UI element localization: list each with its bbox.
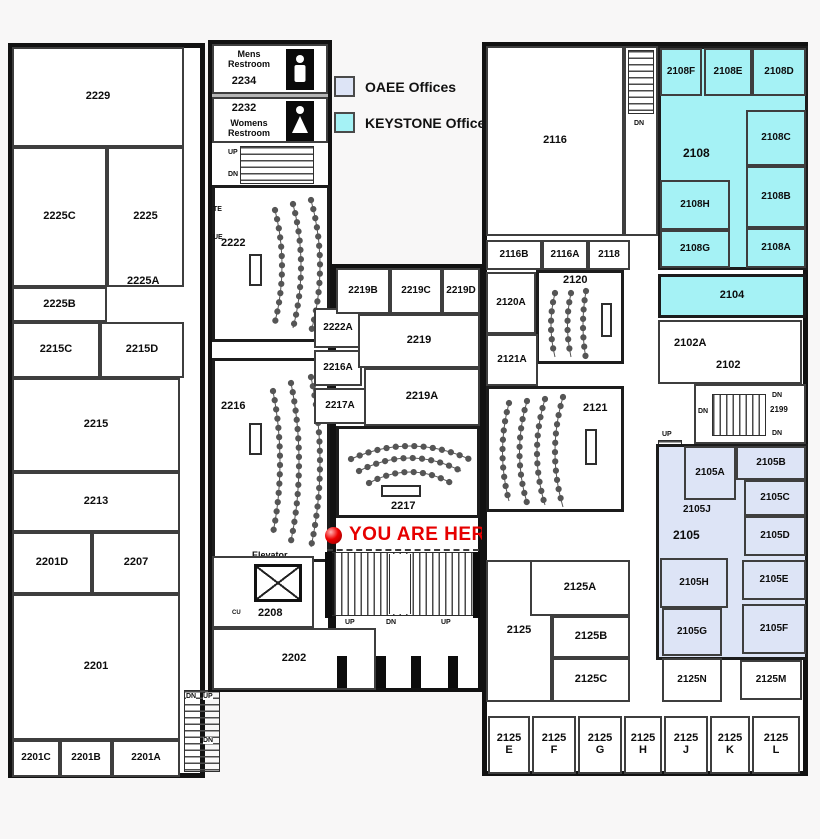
legend-swatch-keystone	[334, 112, 355, 133]
room-2116B-label: 2116B	[500, 250, 529, 261]
room-2219C-label: 2219C	[401, 286, 430, 297]
room-2116-label: 2116	[543, 135, 567, 147]
room-2125K-label: 2125 K	[718, 733, 742, 757]
room-2116B: 2116B	[486, 240, 542, 270]
you-are-here-label: YOU ARE HERE	[349, 524, 499, 546]
legend-item-keystone: KEYSTONE Offices	[334, 112, 493, 133]
room-2219A-label: 2219A	[406, 391, 438, 403]
room-2121A-label: 2121A	[497, 355, 526, 366]
room-2222-label: 2222	[221, 238, 245, 250]
room-2125B: 2125B	[552, 616, 630, 658]
room-2201C: 2201C	[12, 740, 60, 777]
room-2225-label: 2225	[133, 211, 157, 223]
up-label: UP	[345, 619, 355, 626]
room-2108C: 2108C	[746, 110, 806, 166]
up-label: UP	[441, 619, 451, 626]
legend-item-oaee: OAEE Offices	[334, 76, 456, 97]
room-2108E: 2108E	[704, 48, 752, 96]
room-2105E: 2105E	[742, 560, 806, 600]
room-2125C: 2125C	[552, 658, 630, 702]
room-2105A-label: 2105A	[695, 468, 724, 479]
room-2105H: 2105H	[660, 558, 728, 608]
room-mens-restroom: Mens Restroom 2234	[212, 44, 328, 94]
room-2225C: 2225C	[12, 147, 107, 287]
room-2216A: 2216A	[314, 350, 362, 386]
room-2108F: 2108F	[660, 48, 702, 96]
room-2215C-label: 2215C	[40, 344, 72, 356]
te-label: TE	[213, 206, 222, 213]
room-2201A: 2201A	[112, 740, 180, 777]
room-2216: 2216	[212, 358, 330, 562]
room-2202: 2202	[212, 628, 376, 690]
dn-label: DN	[772, 430, 782, 437]
room-2120: 2120	[536, 270, 624, 364]
stairs-southwest	[184, 690, 220, 772]
entrance-post	[337, 656, 347, 688]
room-2121-label: 2121	[583, 403, 607, 415]
room-2215D: 2215D	[100, 322, 184, 378]
room-2219A: 2219A	[364, 368, 480, 426]
room-2125A-label: 2125A	[564, 582, 596, 594]
legend-label-keystone: KEYSTONE Offices	[365, 115, 493, 131]
room-2125F: 2125 F	[532, 716, 576, 774]
room-2105C-label: 2105C	[760, 493, 789, 504]
room-2105F-label: 2105F	[760, 624, 788, 635]
room-2219C: 2219C	[390, 268, 442, 314]
mens-restroom-label: Mens Restroom	[218, 50, 280, 69]
room-2108H-label: 2108H	[680, 200, 709, 211]
up-label: UP	[662, 431, 672, 438]
entrance-post	[448, 656, 458, 688]
stairwell-2199: DN 2199 DN DN	[694, 384, 806, 444]
room-2229: 2229	[12, 47, 184, 147]
room-2105B: 2105B	[736, 446, 806, 480]
room-2105D: 2105D	[744, 516, 806, 556]
room-2108A-label: 2108A	[761, 243, 790, 254]
womens-restroom-label: Womens Restroom	[218, 119, 280, 138]
room-2125-label: 2125	[507, 625, 531, 637]
stairs-restroom	[240, 146, 314, 184]
room-2217-label: 2217	[391, 501, 415, 513]
dn-label: DN	[203, 737, 213, 744]
room-2202-label: 2202	[282, 653, 306, 665]
lectern-2120	[601, 303, 612, 337]
room-2108H: 2108H	[660, 180, 730, 230]
room-2105E-label: 2105E	[760, 575, 789, 586]
room-2201D-label: 2201D	[36, 557, 68, 569]
room-2201B-label: 2201B	[71, 753, 100, 764]
room-2216-label: 2216	[221, 401, 245, 413]
room-2219: 2219	[358, 314, 480, 368]
seat-rows-2217	[343, 431, 477, 487]
room-2201C-label: 2201C	[21, 753, 50, 764]
room-2234-label: 2234	[224, 76, 264, 88]
entrance-post	[376, 656, 386, 688]
lectern-2222	[249, 254, 262, 286]
room-2105-label: 2105	[673, 529, 700, 542]
elevator-icon	[254, 564, 302, 602]
room-2222: 2222	[212, 185, 330, 342]
room-2125L: 2125 L	[752, 716, 800, 774]
room-2116A-label: 2116A	[551, 250, 580, 261]
room-2213-label: 2213	[84, 496, 108, 508]
stairs-northeast	[628, 50, 654, 114]
room-2219B-label: 2219B	[348, 286, 377, 297]
room-2215C: 2215C	[12, 322, 100, 378]
room-2105D-label: 2105D	[760, 531, 789, 542]
up-label: UP	[203, 693, 213, 700]
room-2225B: 2225B	[12, 287, 107, 322]
room-2108-label: 2108	[683, 147, 710, 160]
room-2225B-label: 2225B	[43, 299, 75, 311]
stairs-main-landing	[389, 554, 411, 614]
room-2229-label: 2229	[86, 91, 110, 103]
dn-label: DN	[386, 619, 396, 626]
floor-plan: 2229 2225C 2225 2225A 2225B 2215C 2215D …	[0, 0, 820, 839]
room-2219-label: 2219	[407, 335, 431, 347]
room-womens-restroom: 2232 Womens Restroom	[212, 97, 328, 143]
room-2201: 2201	[12, 594, 180, 740]
room-2208: 2208 CU	[212, 556, 314, 628]
room-2118-label: 2118	[598, 250, 620, 261]
room-2125B-label: 2125B	[575, 631, 607, 643]
room-2207: 2207	[92, 532, 180, 594]
room-2102: 2102A 2102	[658, 320, 802, 384]
room-2219D: 2219D	[442, 268, 480, 314]
room-2108G-label: 2108G	[680, 244, 710, 255]
room-2108F-label: 2108F	[667, 67, 695, 78]
room-2217A-label: 2217A	[325, 401, 354, 412]
you-are-here-dot	[325, 527, 342, 544]
room-2108E-label: 2108E	[714, 67, 743, 78]
up-label: UP	[228, 149, 238, 156]
room-2201D: 2201D	[12, 532, 92, 594]
room-2116: 2116	[486, 46, 624, 236]
room-2125C-label: 2125C	[575, 674, 607, 686]
room-2225A-label: 2225A	[127, 276, 159, 288]
room-2105F: 2105F	[742, 604, 806, 654]
room-2125N-label: 2125N	[677, 675, 706, 686]
legend-swatch-oaee	[334, 76, 355, 97]
dn-label: DN	[634, 120, 644, 127]
room-2105B-label: 2105B	[756, 458, 785, 469]
room-2125A: 2125A	[530, 560, 630, 616]
room-2105G-label: 2105G	[677, 627, 707, 638]
entrance-post	[411, 656, 421, 688]
room-2125E: 2125 E	[488, 716, 530, 774]
room-2125J: 2125 J	[664, 716, 708, 774]
lobby-dashed-line	[327, 549, 479, 551]
room-2199-label: 2199	[770, 406, 788, 415]
room-2105C: 2105C	[744, 480, 806, 516]
lectern-2216	[249, 423, 262, 455]
dn-label: DN	[186, 693, 196, 700]
seat-rows-2121	[493, 393, 585, 511]
room-2201-label: 2201	[84, 661, 108, 673]
room-2125H: 2125 H	[624, 716, 662, 774]
room-2125N: 2125N	[662, 658, 722, 702]
dn-label: DN	[772, 392, 782, 399]
male-icon	[286, 49, 314, 90]
room-2105G: 2105G	[662, 608, 722, 656]
room-2125M-label: 2125M	[756, 675, 787, 686]
room-2118: 2118	[588, 240, 630, 270]
room-2217: 2217	[336, 426, 480, 518]
room-2201B: 2201B	[60, 740, 112, 777]
room-2219D-label: 2219D	[446, 286, 475, 297]
room-2125K: 2125 K	[710, 716, 750, 774]
room-2125L-label: 2125 L	[764, 733, 788, 757]
legend-label-oaee: OAEE Offices	[365, 79, 456, 95]
room-2201A-label: 2201A	[131, 753, 160, 764]
stairwell-northeast: DN	[624, 46, 658, 236]
room-2207-label: 2207	[124, 557, 148, 569]
room-2120-label: 2120	[563, 275, 587, 287]
seat-rows-2120	[543, 287, 599, 363]
room-2213: 2213	[12, 472, 180, 532]
female-icon	[286, 101, 314, 141]
room-2225: 2225	[107, 147, 184, 287]
dn-label: DN	[228, 171, 238, 178]
room-2120A-label: 2120A	[496, 298, 525, 309]
room-2120A: 2120A	[486, 272, 536, 334]
stair-rail	[473, 552, 480, 618]
room-2215: 2215	[12, 378, 180, 472]
room-2208-label: 2208	[258, 608, 282, 620]
room-2232-label: 2232	[224, 103, 264, 115]
room-2121A: 2121A	[486, 334, 538, 386]
room-2125E-label: 2125 E	[497, 733, 521, 757]
room-2222A: 2222A	[314, 308, 362, 348]
stairs-2199	[712, 394, 766, 436]
room-2215D-label: 2215D	[126, 344, 158, 356]
room-2108B-label: 2108B	[761, 192, 790, 203]
room-2102A-label: 2102A	[674, 338, 706, 350]
room-2125F-label: 2125 F	[542, 733, 566, 757]
room-2105H-label: 2105H	[679, 578, 708, 589]
cu-label: CU	[232, 610, 241, 616]
room-2104: 2104	[658, 274, 806, 318]
room-2225C-label: 2225C	[43, 211, 75, 223]
room-2125G-label: 2125 G	[588, 733, 612, 757]
room-2105A: 2105A	[684, 446, 736, 500]
room-2216A-label: 2216A	[323, 363, 352, 374]
room-2108G: 2108G	[660, 230, 730, 268]
room-2125J-label: 2125 J	[674, 733, 698, 757]
room-2108B: 2108B	[746, 166, 806, 228]
room-2125H-label: 2125 H	[631, 733, 655, 757]
room-2125M: 2125M	[740, 660, 802, 700]
room-2217A: 2217A	[314, 388, 366, 424]
room-2222A-label: 2222A	[323, 323, 352, 334]
room-2108D: 2108D	[752, 48, 806, 96]
room-2108C-label: 2108C	[761, 133, 790, 144]
room-2125G: 2125 G	[578, 716, 622, 774]
room-2219B: 2219B	[336, 268, 390, 314]
room-2108A: 2108A	[746, 228, 806, 268]
room-2215-label: 2215	[84, 419, 108, 431]
room-2104-label: 2104	[720, 290, 744, 302]
ue-label: UE	[213, 234, 223, 241]
room-2108D-label: 2108D	[764, 67, 793, 78]
stair-rail	[325, 552, 332, 618]
room-2102-label: 2102	[716, 360, 740, 372]
dn-label: DN	[698, 408, 708, 415]
room-2121: 2121	[486, 386, 624, 512]
room-2105J-label: 2105J	[683, 505, 711, 516]
lectern-2121	[585, 429, 597, 465]
room-2116A: 2116A	[542, 240, 588, 270]
